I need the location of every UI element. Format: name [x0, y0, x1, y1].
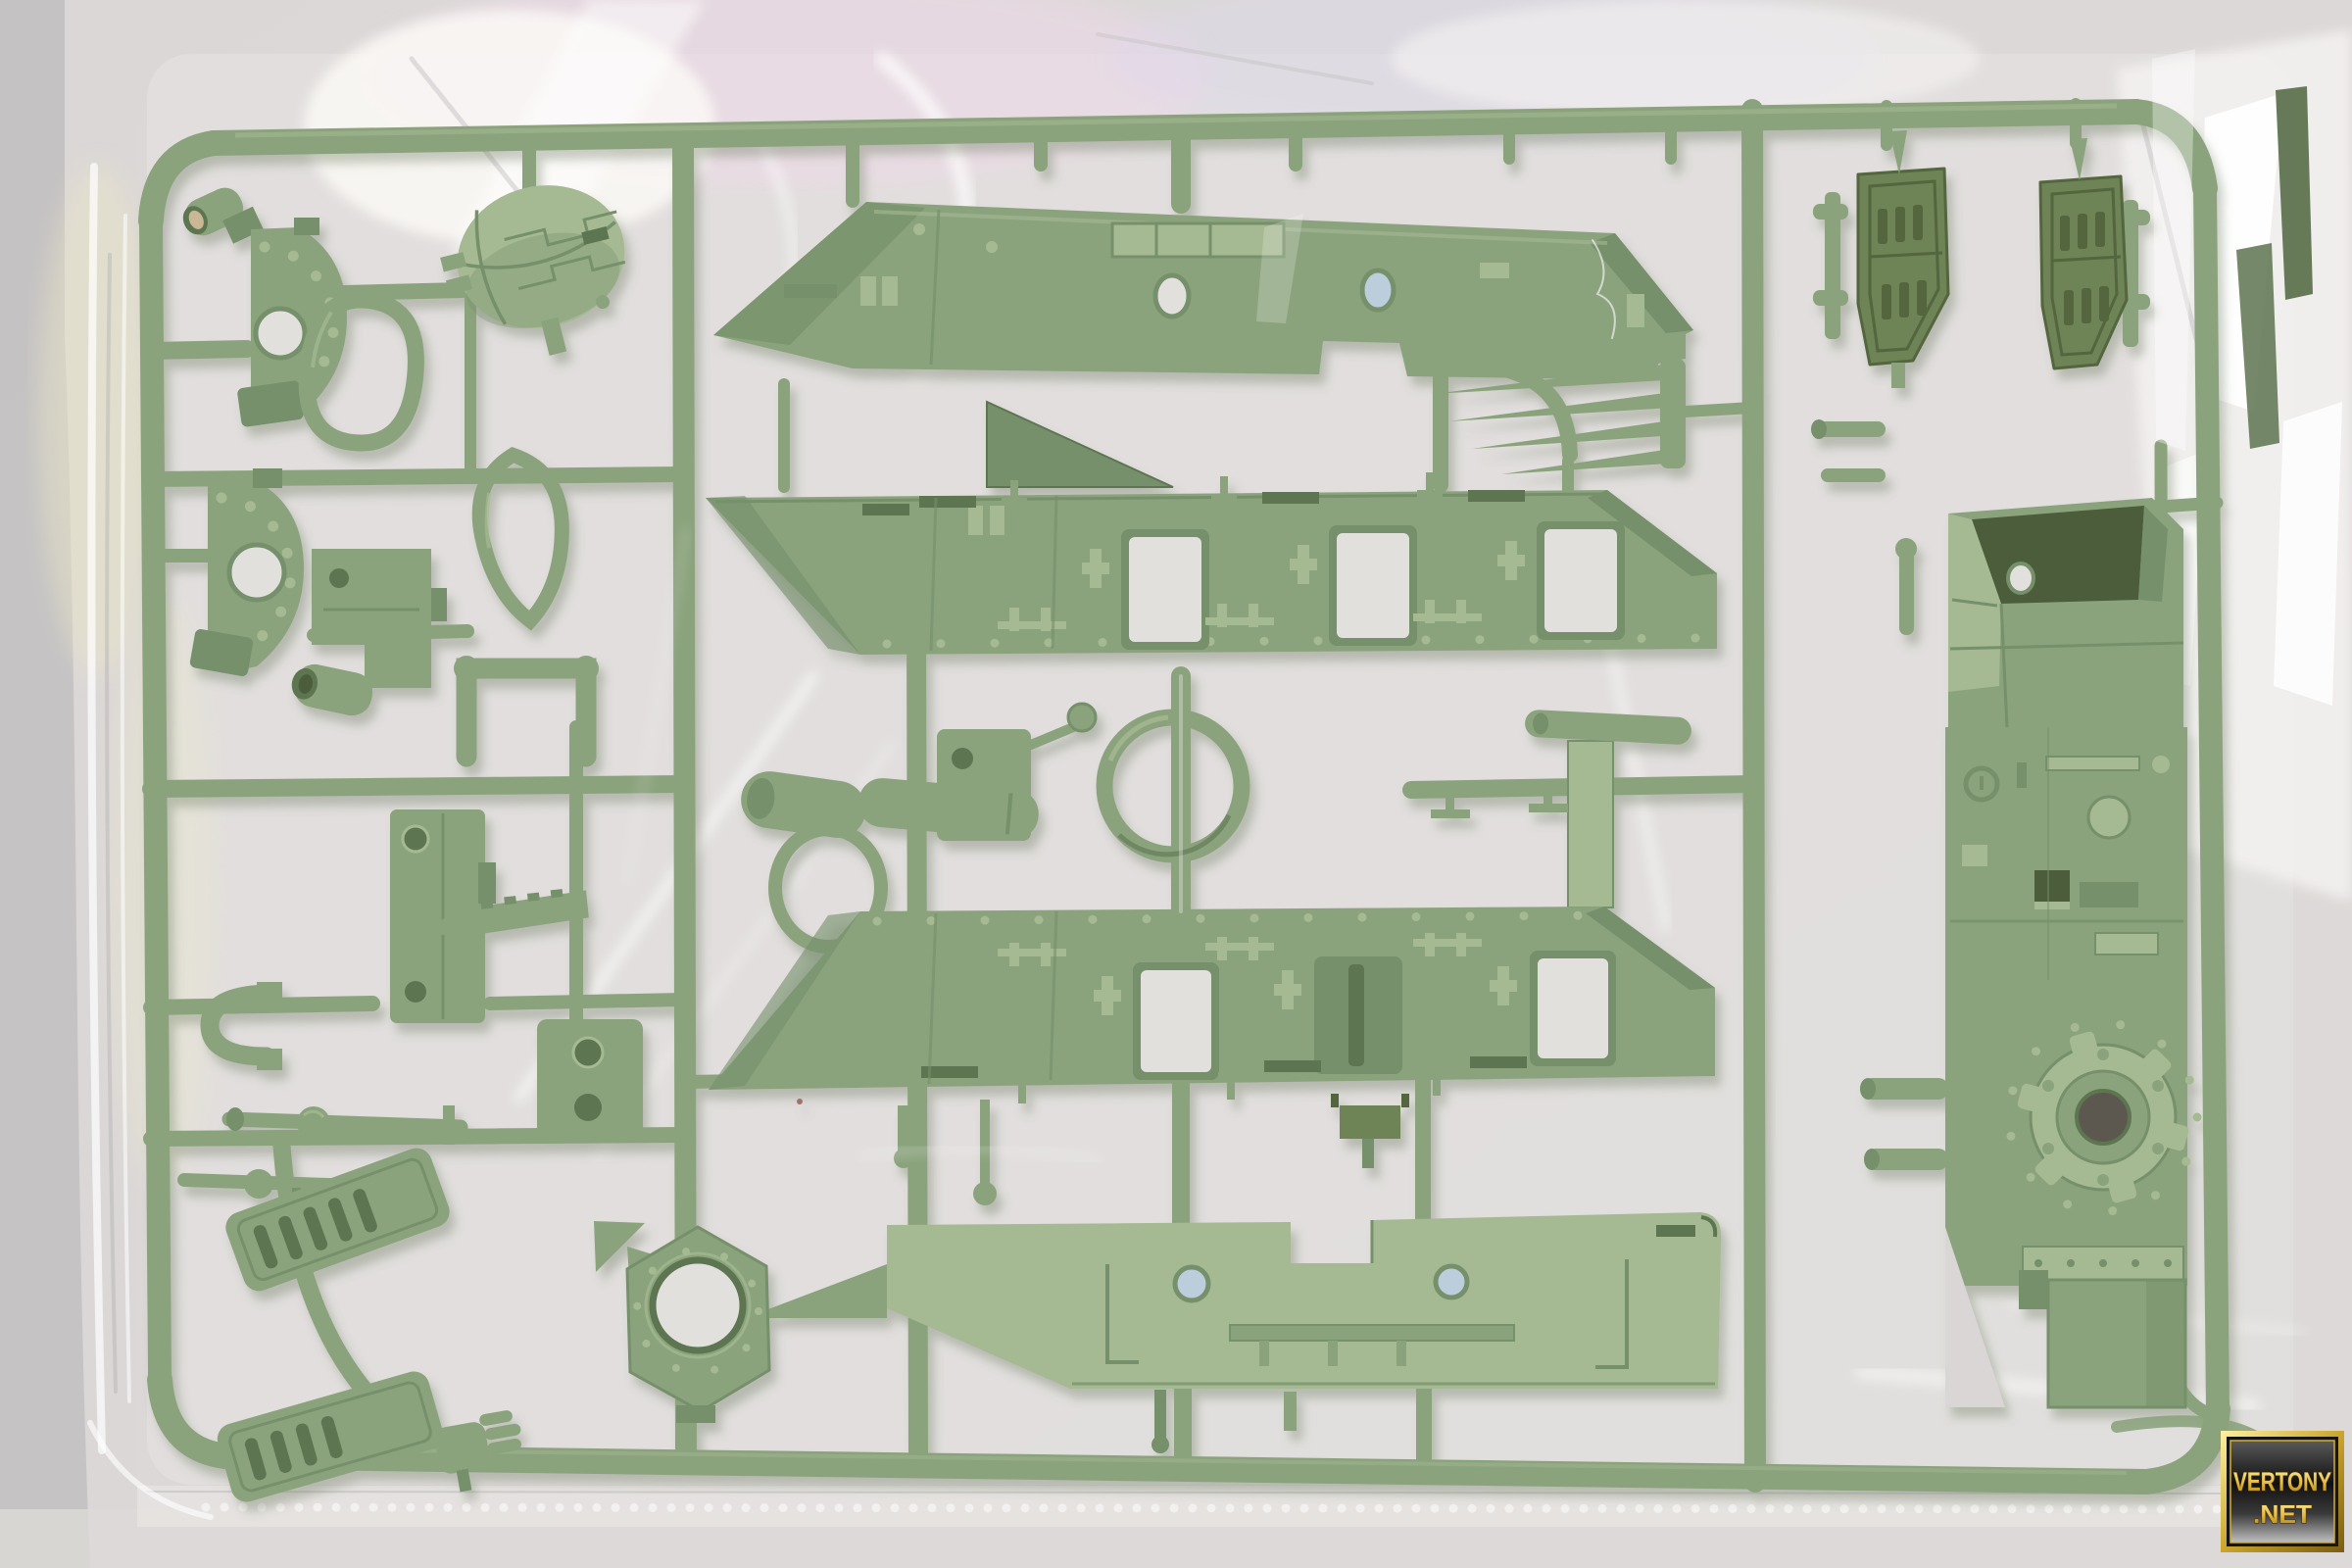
skirt-slot: [1133, 951, 1616, 1080]
watermark-line1: VERTONY: [2233, 1467, 2331, 1496]
skirt-slot: [1121, 521, 1625, 650]
frame-left-runner: [151, 220, 160, 1380]
part-block-two-holes: [537, 1019, 643, 1143]
frame-right-runner: [2205, 188, 2218, 1409]
part-flat-strip: [1568, 741, 1613, 907]
watermark-line2: .NET: [2253, 1499, 2312, 1529]
bag-tint-yellow-left: [39, 167, 157, 676]
hull-hopper-top: [1948, 498, 2183, 727]
part-side-skirt-upper: [706, 472, 1717, 655]
debris-speck: [797, 1099, 803, 1104]
photo-canvas: VERTONY .NET: [0, 0, 2352, 1568]
part-side-skirt-lower: [709, 906, 1715, 1103]
watermark-badge: VERTONY .NET: [2221, 1431, 2344, 1552]
photo-model-kit-sprue-in-bag: VERTONY .NET: [0, 0, 2352, 1568]
